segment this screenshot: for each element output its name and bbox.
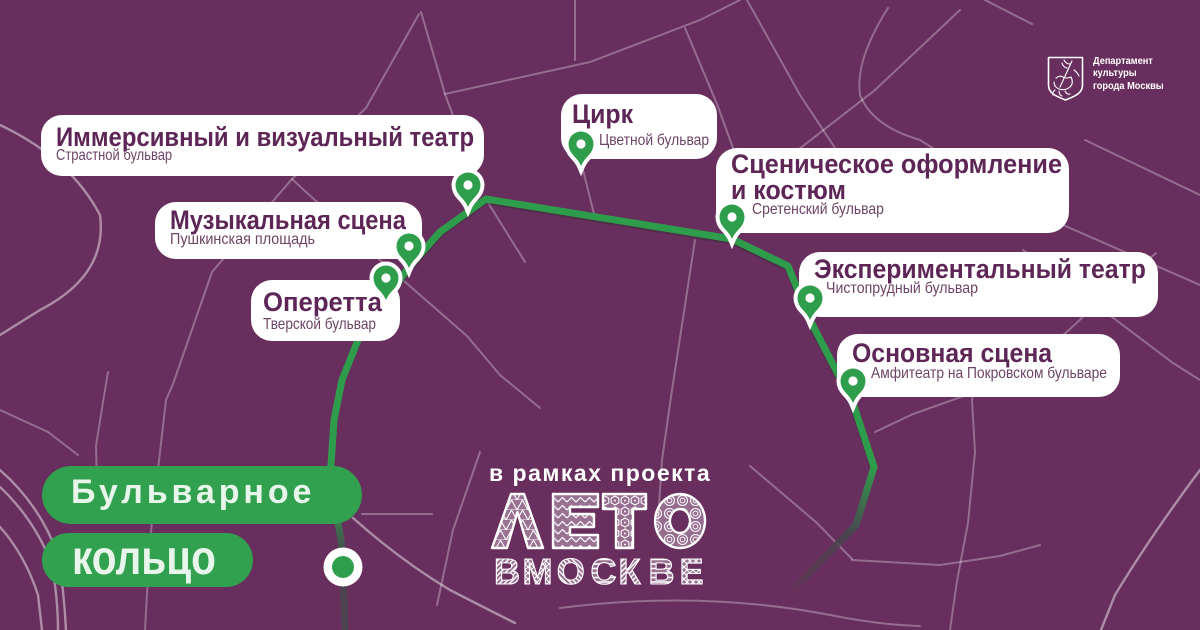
svg-text:В: В	[494, 551, 520, 592]
svg-text:С: С	[591, 551, 617, 592]
svg-text:К: К	[619, 551, 642, 592]
svg-text:Е: Е	[680, 551, 704, 592]
svg-text:В: В	[649, 551, 675, 592]
svg-text:О: О	[557, 551, 585, 592]
svg-text:М: М	[523, 551, 553, 592]
